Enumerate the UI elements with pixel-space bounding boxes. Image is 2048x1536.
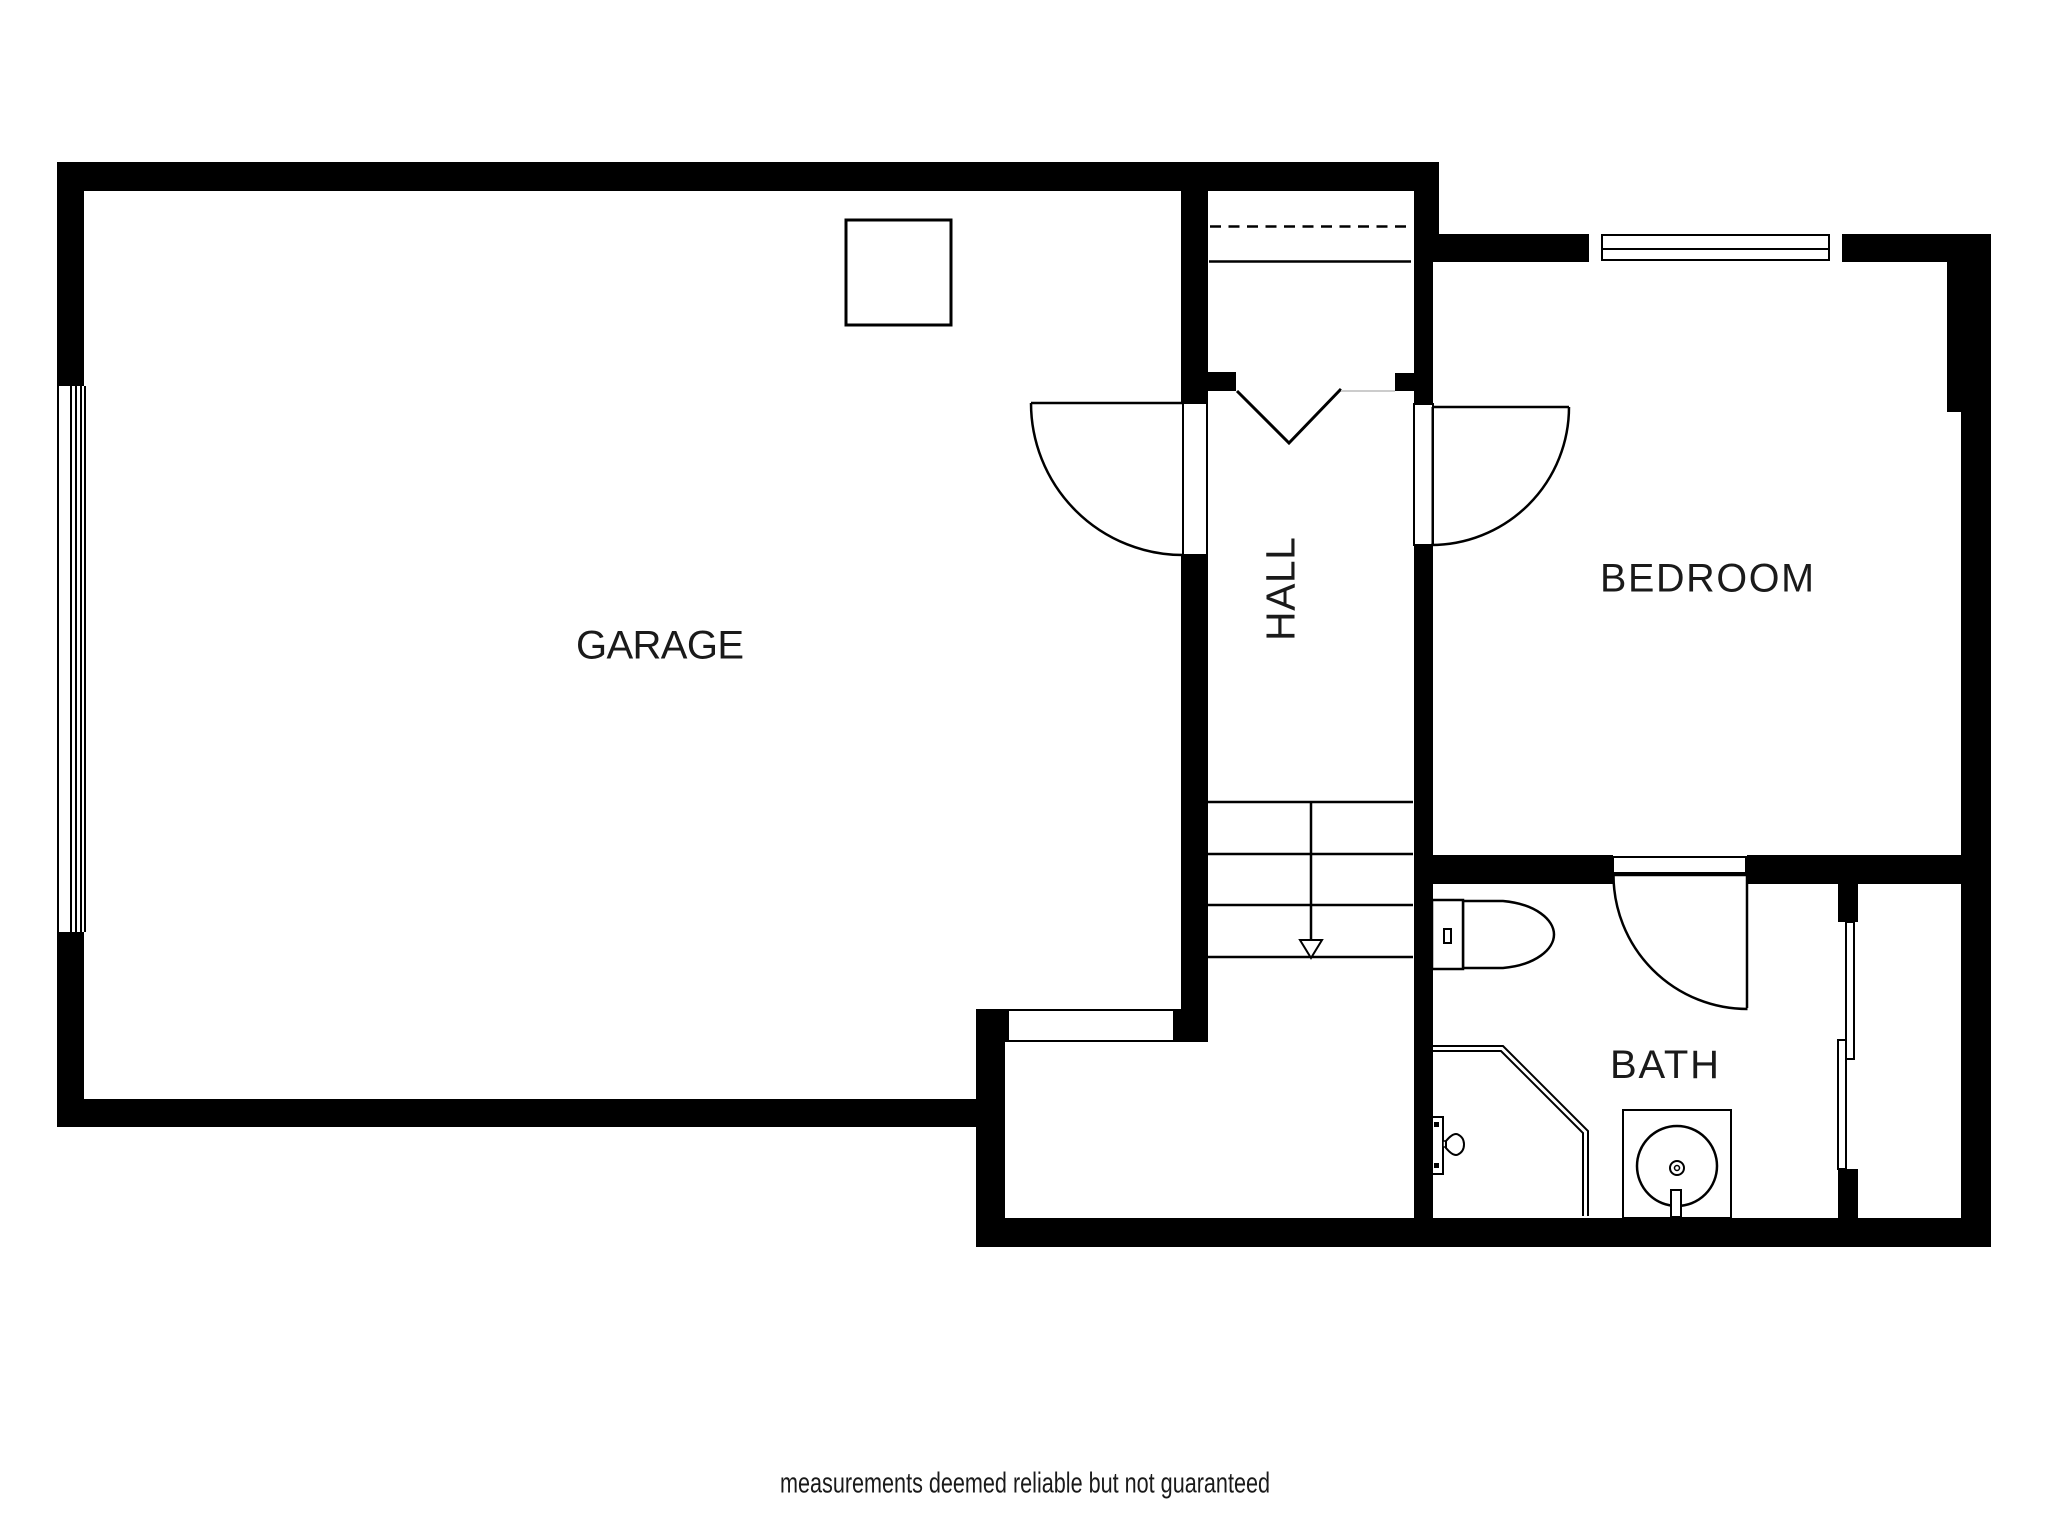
svg-text:BEDROOM: BEDROOM (1600, 556, 1814, 600)
svg-text:HALL: HALL (1258, 537, 1304, 641)
svg-text:GARAGE: GARAGE (576, 624, 744, 668)
svg-text:measurements deemed reliable b: measurements deemed reliable but not gua… (780, 1467, 1270, 1499)
svg-text:BATH: BATH (1610, 1043, 1719, 1087)
